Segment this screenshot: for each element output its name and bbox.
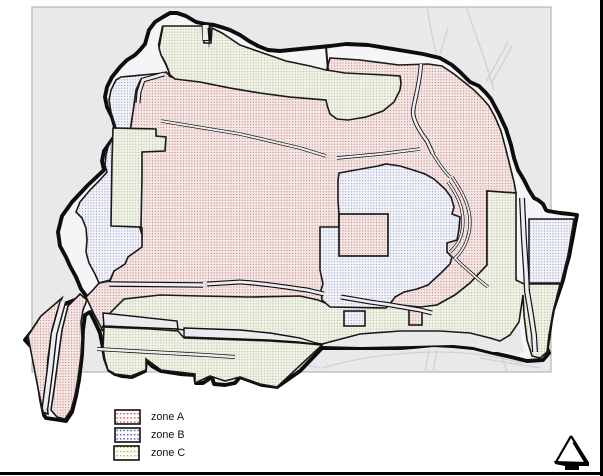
svg-text:zone C: zone C bbox=[151, 447, 185, 459]
svg-text:zone A: zone A bbox=[151, 411, 185, 423]
svg-text:zone B: zone B bbox=[151, 429, 185, 441]
